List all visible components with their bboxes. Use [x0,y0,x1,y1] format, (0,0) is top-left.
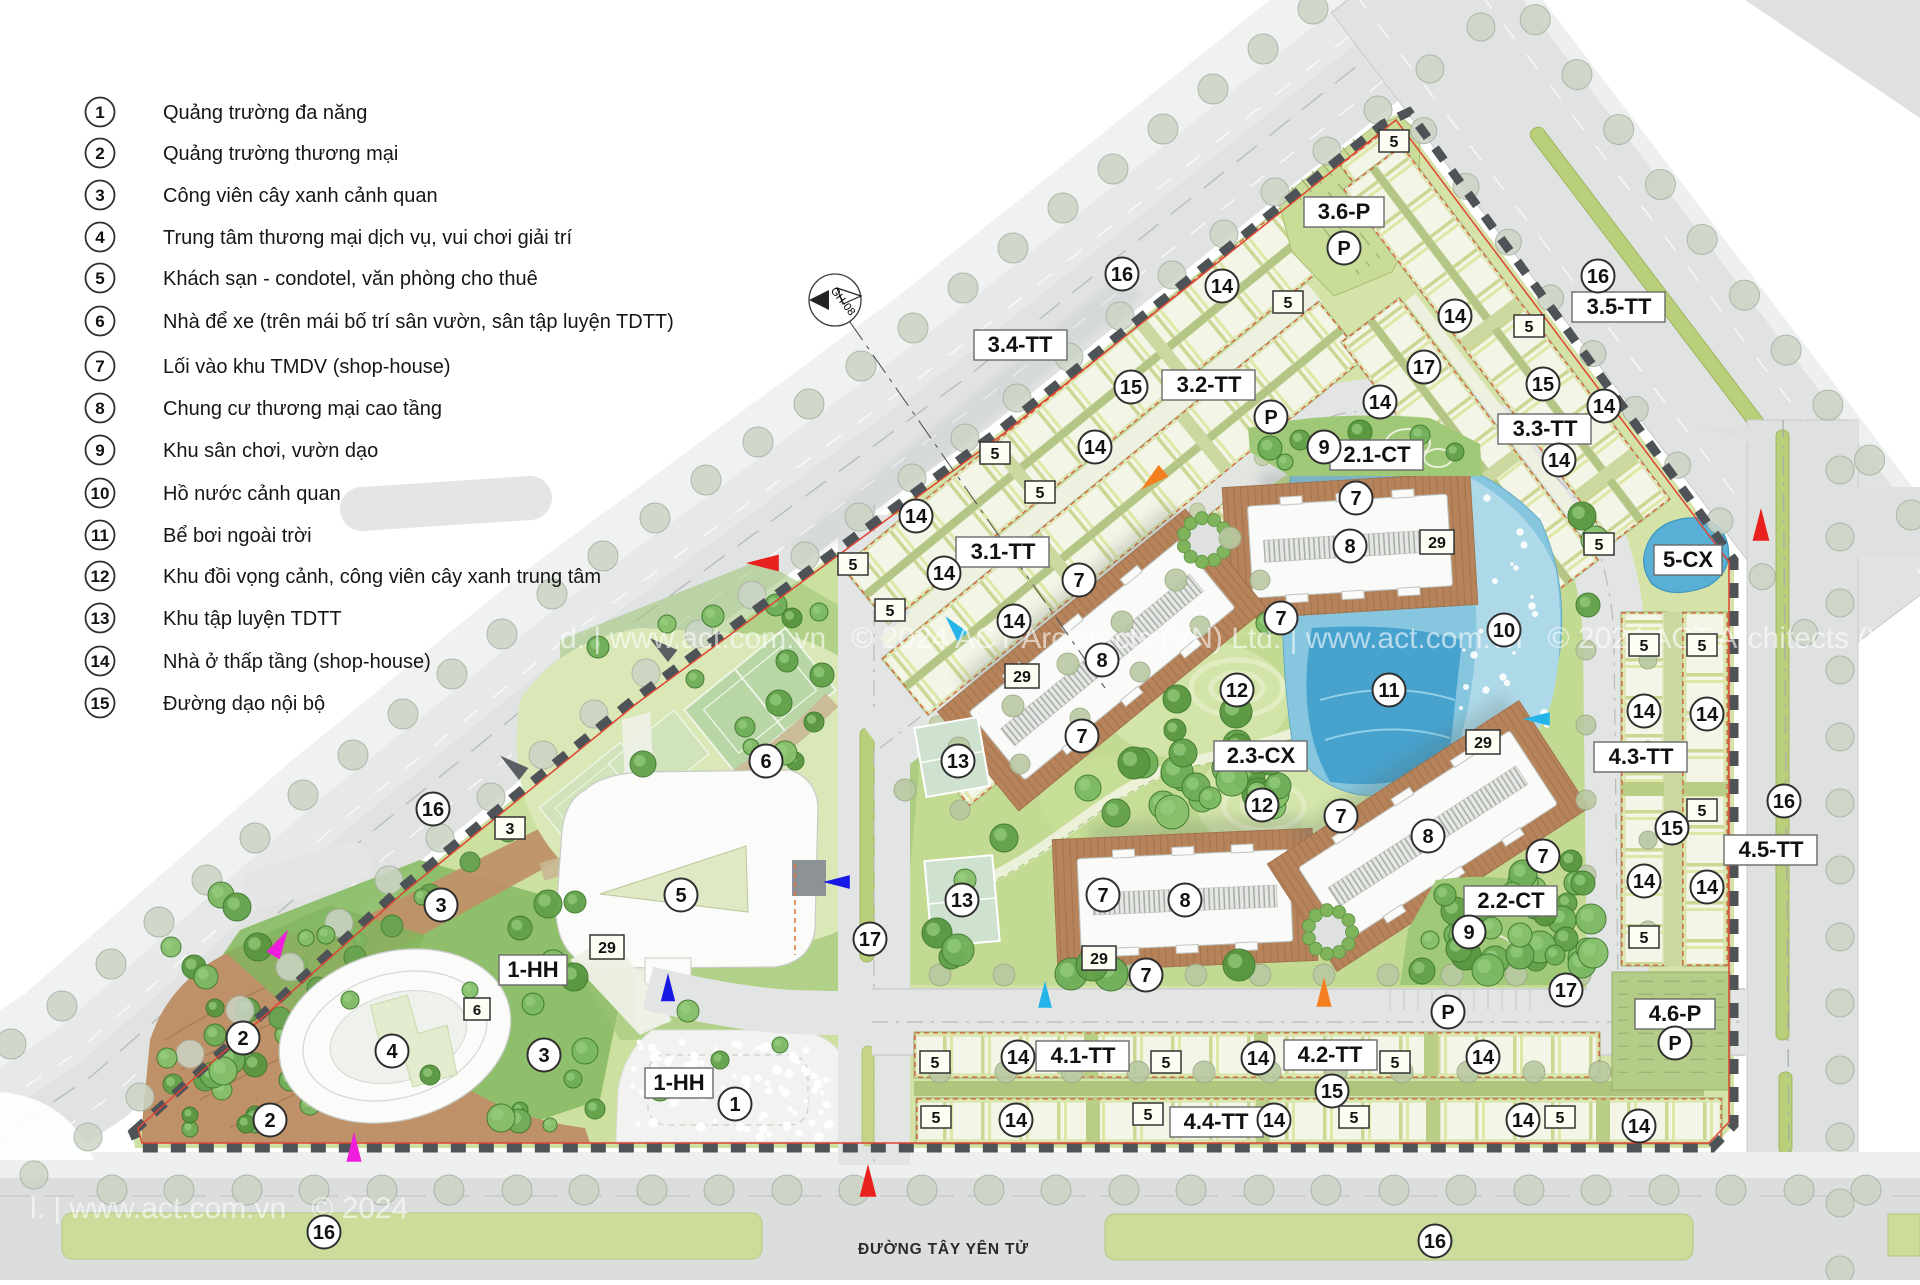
svg-text:14: 14 [1696,877,1719,899]
svg-text:1: 1 [95,103,104,122]
svg-text:3.1-TT: 3.1-TT [971,539,1036,564]
svg-text:15: 15 [1661,818,1683,840]
svg-text:7: 7 [1140,965,1151,987]
svg-text:4: 4 [386,1041,398,1063]
svg-text:5: 5 [1391,1055,1400,1072]
svg-text:Nhà ở thấp tầng (shop-house): Nhà ở thấp tầng (shop-house) [163,651,431,673]
svg-text:3.2-TT: 3.2-TT [1177,372,1242,397]
svg-text:Khu đồi vọng cảnh, công viên c: Khu đồi vọng cảnh, công viên cây xanh tr… [163,566,601,588]
svg-text:7: 7 [1350,488,1361,510]
svg-text:7: 7 [1097,885,1108,907]
svg-text:Chung cư thương mại cao tầng: Chung cư thương mại cao tầng [163,398,442,420]
svg-text:5: 5 [931,1055,940,1072]
svg-text:5: 5 [932,1110,941,1127]
svg-text:29: 29 [598,940,616,957]
svg-text:10: 10 [91,484,110,503]
svg-text:Khu sân chơi, vườn dạo: Khu sân chơi, vườn dạo [163,440,378,462]
svg-text:Đường dạo nội bộ: Đường dạo nội bộ [163,693,325,715]
svg-text:8: 8 [1422,826,1433,848]
svg-text:Khu tập luyện TDTT: Khu tập luyện TDTT [163,608,342,630]
svg-text:8: 8 [1344,536,1355,558]
svg-text:5: 5 [886,603,895,620]
svg-text:P: P [1668,1033,1681,1055]
svg-text:3.5-TT: 3.5-TT [1587,294,1652,319]
svg-text:12: 12 [1226,680,1248,702]
svg-text:5: 5 [1390,134,1399,151]
svg-text:7: 7 [1537,846,1548,868]
svg-text:5: 5 [1525,319,1534,336]
svg-text:12: 12 [1251,795,1273,817]
svg-text:7: 7 [1275,608,1286,630]
svg-text:3.6-P: 3.6-P [1318,199,1371,224]
svg-text:7: 7 [1335,806,1346,828]
svg-text:4: 4 [95,228,105,247]
svg-text:29: 29 [1013,669,1031,686]
svg-text:14: 14 [1211,276,1234,298]
svg-text:15: 15 [1321,1081,1343,1103]
svg-text:14: 14 [1628,1116,1651,1138]
svg-text:Hồ nước cảnh quan: Hồ nước cảnh quan [163,483,341,505]
svg-text:4.3-TT: 4.3-TT [1609,744,1674,769]
svg-text:5: 5 [1036,485,1045,502]
svg-text:14: 14 [1444,306,1467,328]
svg-text:10: 10 [1493,620,1515,642]
svg-text:5: 5 [1640,930,1649,947]
svg-text:8: 8 [1096,650,1107,672]
svg-text:17: 17 [1413,357,1435,379]
svg-text:16: 16 [1424,1231,1446,1253]
svg-text:4.6-P: 4.6-P [1649,1001,1702,1026]
svg-text:Trung tâm thương mại dịch vụ,: Trung tâm thương mại dịch vụ, vui chơi g… [163,227,572,249]
svg-text:14: 14 [933,563,956,585]
svg-text:l. | www.act.com.vn © 2024: l. | www.act.com.vn © 2024 [30,1192,408,1225]
svg-text:15: 15 [1532,374,1554,396]
svg-text:14: 14 [1369,392,1392,414]
svg-text:P: P [1441,1002,1454,1024]
svg-text:2.3-CX: 2.3-CX [1227,743,1296,768]
svg-text:11: 11 [1378,680,1399,702]
svg-text:6: 6 [95,312,104,331]
svg-text:Khách sạn - condotel, văn phòn: Khách sạn - condotel, văn phòng cho thuê [163,268,538,290]
svg-text:4.5-TT: 4.5-TT [1739,837,1804,862]
svg-text:2: 2 [95,144,104,163]
svg-text:5-CX: 5-CX [1663,547,1713,572]
svg-text:14: 14 [1007,1047,1030,1069]
svg-text:16: 16 [422,799,444,821]
svg-text:1: 1 [729,1094,740,1116]
svg-text:14: 14 [91,652,110,671]
svg-text:9: 9 [1318,437,1329,459]
svg-text:17: 17 [859,929,881,951]
svg-text:16: 16 [1111,264,1133,286]
svg-text:1-HH: 1-HH [507,957,558,982]
svg-text:13: 13 [947,751,969,773]
svg-text:2: 2 [264,1110,275,1132]
svg-text:5: 5 [675,885,686,907]
svg-text:4.2-TT: 4.2-TT [1298,1042,1363,1067]
svg-text:1-HH: 1-HH [653,1070,704,1095]
svg-text:14: 14 [1084,437,1107,459]
svg-text:5: 5 [1350,1110,1359,1127]
svg-text:Công viên cây xanh cảnh quan: Công viên cây xanh cảnh quan [163,185,438,207]
svg-text:16: 16 [1773,791,1795,813]
svg-text:14: 14 [1005,1110,1028,1132]
svg-text:3.4-TT: 3.4-TT [988,332,1053,357]
svg-text:5: 5 [991,446,1000,463]
svg-text:14: 14 [905,506,928,528]
svg-text:2: 2 [237,1028,248,1050]
svg-text:9: 9 [1463,922,1474,944]
svg-text:5: 5 [1595,537,1604,554]
svg-text:14: 14 [1633,701,1656,723]
svg-text:7: 7 [95,357,104,376]
svg-text:7: 7 [1076,726,1087,748]
svg-text:Bể bơi ngoài trời: Bể bơi ngoài trời [163,525,312,547]
svg-text:14: 14 [1512,1110,1535,1132]
svg-text:11: 11 [91,526,109,545]
svg-text:16: 16 [1587,266,1609,288]
svg-text:5: 5 [1698,803,1707,820]
svg-text:17: 17 [1555,980,1577,1002]
svg-text:5: 5 [1556,1110,1565,1127]
svg-text:14: 14 [1263,1110,1286,1132]
svg-text:P: P [1337,238,1350,260]
svg-text:5: 5 [1698,638,1707,655]
svg-text:8: 8 [95,399,104,418]
svg-text:7: 7 [1073,570,1084,592]
svg-text:29: 29 [1474,735,1492,752]
svg-text:3: 3 [506,821,515,838]
svg-text:6: 6 [760,751,771,773]
svg-text:Lối vào khu TMDV (shop-house): Lối vào khu TMDV (shop-house) [163,356,451,378]
svg-text:Quảng trường thương mại: Quảng trường thương mại [163,143,398,165]
svg-text:14: 14 [1696,704,1719,726]
svg-text:Nhà để xe (trên mái bố trí sân: Nhà để xe (trên mái bố trí sân vườn, sân… [163,311,674,333]
svg-text:14: 14 [1633,871,1656,893]
svg-text:5: 5 [1284,295,1293,312]
svg-text:5: 5 [1162,1055,1171,1072]
svg-text:3.3-TT: 3.3-TT [1513,416,1578,441]
svg-text:2.2-CT: 2.2-CT [1477,888,1545,913]
svg-text:8: 8 [1179,890,1190,912]
svg-text:5: 5 [1144,1107,1153,1124]
svg-text:5: 5 [1640,638,1649,655]
svg-text:P: P [1264,407,1277,429]
svg-text:ĐƯỜNG TÂY YÊN TỬ: ĐƯỜNG TÂY YÊN TỬ [858,1240,1029,1258]
svg-text:14: 14 [1548,450,1571,472]
svg-text:Quảng trường đa năng: Quảng trường đa năng [163,102,367,124]
svg-text:12: 12 [91,567,110,586]
svg-text:4.4-TT: 4.4-TT [1184,1109,1249,1134]
svg-text:29: 29 [1090,951,1108,968]
svg-text:14: 14 [1247,1048,1270,1070]
svg-text:6: 6 [473,1002,481,1019]
svg-text:2.1-CT: 2.1-CT [1343,442,1411,467]
svg-text:13: 13 [951,890,973,912]
svg-text:14: 14 [1472,1047,1495,1069]
svg-text:15: 15 [1120,377,1142,399]
svg-text:29: 29 [1428,535,1446,552]
svg-text:3: 3 [95,186,104,205]
svg-text:4.1-TT: 4.1-TT [1051,1043,1116,1068]
svg-text:9: 9 [95,441,104,460]
svg-text:15: 15 [91,694,110,713]
svg-text:14: 14 [1593,396,1616,418]
svg-text:5: 5 [95,269,104,288]
svg-text:14: 14 [1003,611,1026,633]
svg-text:3: 3 [538,1045,549,1067]
svg-text:13: 13 [91,609,110,628]
svg-text:3: 3 [435,895,446,917]
svg-text:5: 5 [849,557,858,574]
svg-text:16: 16 [313,1222,335,1244]
